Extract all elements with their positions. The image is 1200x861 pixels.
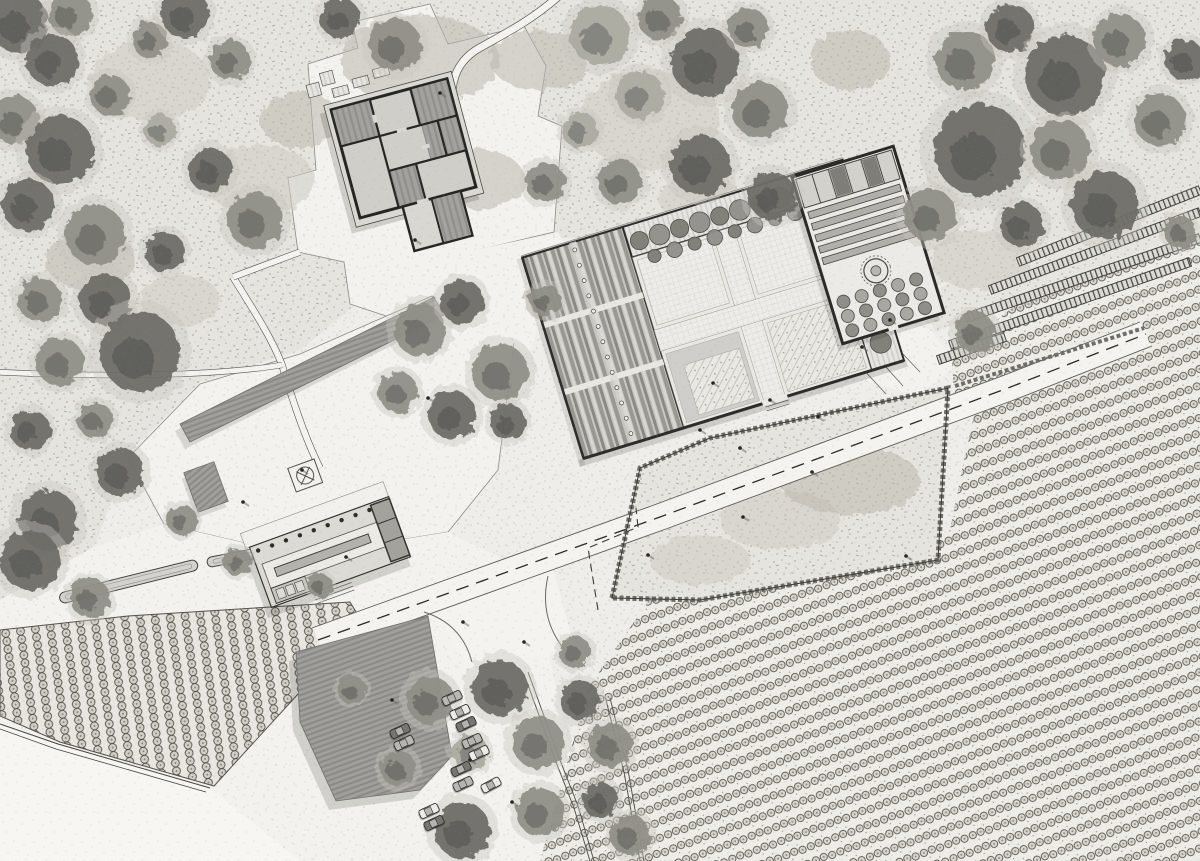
- grain-overlay: [0, 0, 1200, 861]
- site-plan: [0, 0, 1200, 861]
- site-plan-stage: [0, 0, 1200, 861]
